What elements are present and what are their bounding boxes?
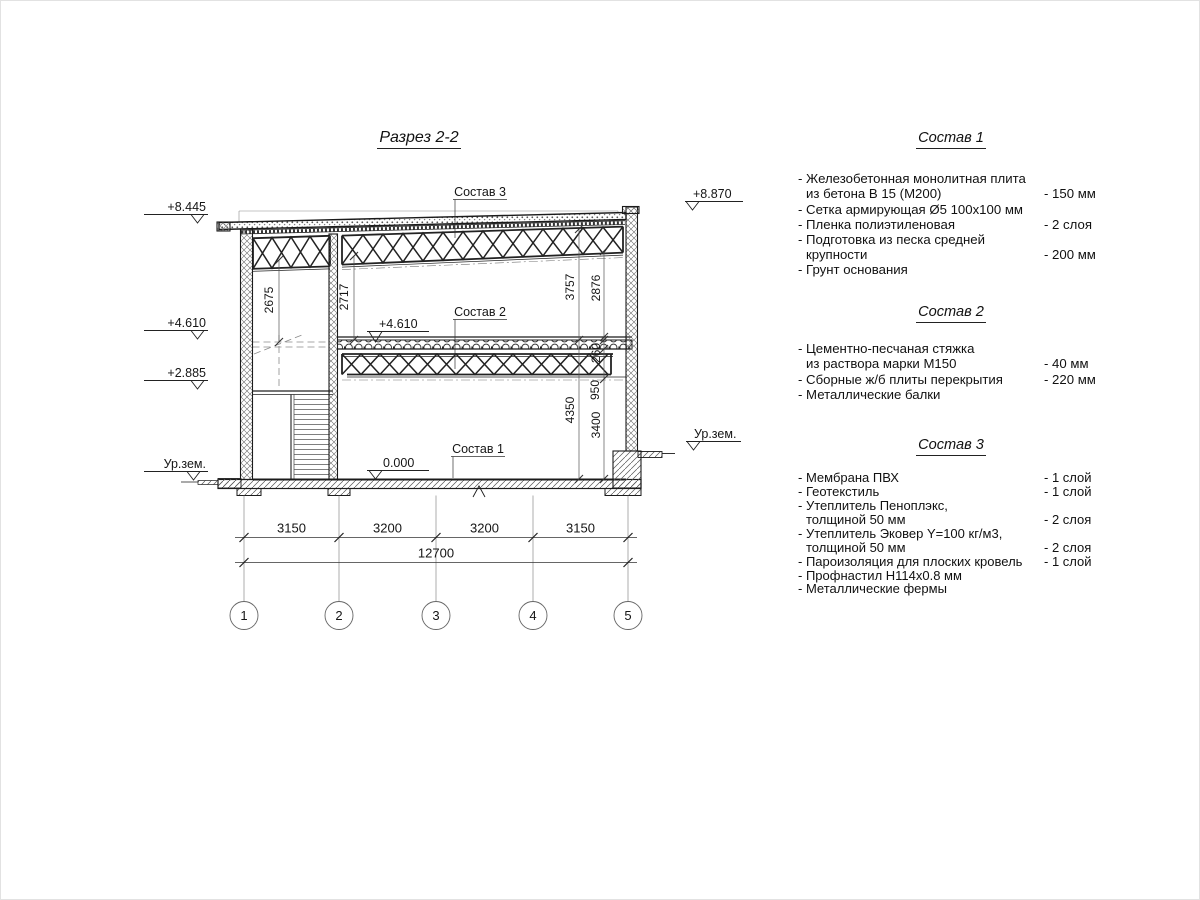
dim-3757: 3757 [563, 273, 577, 300]
dim-950: 950 [588, 380, 602, 400]
spec-2-rows: - Цементно-песчаная стяжка из раствора м… [798, 341, 1162, 402]
dim-2717: 2717 [337, 283, 351, 310]
parapet-cap [623, 207, 640, 214]
spec-row: - Подготовка из песка средней [798, 232, 1162, 247]
spec-row: - Утеплитель Эковер Y=100 кг/м3, [798, 527, 1162, 541]
bottom-dimensions: 3150 3200 3200 3150 12700 1 2 3 4 5 [230, 496, 642, 630]
spec-1-rows: - Железобетонная монолитная плита из бет… [798, 171, 1162, 277]
callout-sostav-2: Состав 2 [454, 305, 506, 319]
dim-260: 260 [589, 343, 603, 363]
right-wall [626, 207, 638, 451]
spec-row: толщиной 50 мм- 2 слоя [798, 541, 1162, 555]
spec-row: - Профнастил Н114х0.8 мм [798, 569, 1162, 583]
mark-8870: +8.870 [693, 187, 732, 201]
elevation-marks: +8.445 +4.610 +2.885 Ур.зем. +8.870 Ур.з… [144, 187, 743, 480]
floor-truss [342, 354, 626, 380]
right-foundation [613, 451, 641, 488]
dim-2675: 2675 [262, 286, 276, 313]
mark-ground-left: Ур.зем. [164, 457, 206, 471]
ground [181, 451, 675, 497]
spec-row: - Мембрана ПВХ- 1 слой [798, 471, 1162, 485]
mark-2885: +2.885 [167, 366, 206, 380]
spec-1-header: Состав 1 [798, 131, 1104, 146]
mark-0000: 0.000 [383, 456, 414, 470]
spec-row: - Сетка армирующая Ø5 100х100 мм [798, 202, 1162, 217]
spec-row: - Пленка полиэтиленовая- 2 слоя [798, 217, 1162, 232]
grid-bubble-5: 5 [624, 608, 631, 623]
spec-row: - Утеплитель Пеноплэкс, [798, 499, 1162, 513]
spec-row: - Металлические балки [798, 387, 1162, 402]
interior-wall [329, 234, 338, 480]
dim-4350: 4350 [563, 396, 577, 423]
left-wall [241, 229, 253, 480]
right-grade-ledge [638, 452, 662, 458]
mark-4610-left: +4.610 [167, 316, 206, 330]
grid-bubble-2: 2 [335, 608, 342, 623]
grid-bubble-3: 3 [432, 608, 439, 623]
roof-trusses [253, 227, 623, 272]
spec-row: - Сборные ж/б плиты перекрытия- 220 мм [798, 372, 1162, 387]
floor-slab [338, 337, 633, 349]
roof-left-cap [217, 222, 230, 231]
dim-3150-b: 3150 [566, 521, 595, 536]
spec-row: из бетона В 15 (М200)- 150 мм [798, 186, 1162, 201]
spec-row: толщиной 50 мм- 2 слоя [798, 513, 1162, 527]
staircase [253, 391, 334, 479]
mark-8445: +8.445 [167, 200, 206, 214]
spec-row: - Железобетонная монолитная плита [798, 171, 1162, 186]
callout-sostav-3: Состав 3 [454, 185, 506, 199]
spec-3-header: Состав 3 [798, 438, 1104, 453]
dim-3400: 3400 [589, 411, 603, 438]
drawing-title-text: Разрез 2-2 [377, 129, 460, 149]
drawing-title: Разрез 2-2 [353, 129, 485, 147]
spec-row: - Цементно-песчаная стяжка [798, 341, 1162, 356]
spec-sostav-1: Состав 1 - Железобетонная монолитная пли… [798, 131, 1162, 278]
mark-ground-right: Ур.зем. [694, 427, 736, 441]
callout-sostav-1: Состав 1 [452, 442, 504, 456]
mark-4610-inner: +4.610 [379, 317, 418, 331]
spec-row: - Металлические фермы [798, 582, 1162, 596]
spec-3-rows: - Мембрана ПВХ- 1 слой - Геотекстиль- 1 … [798, 471, 1162, 596]
spec-row: крупности- 200 мм [798, 247, 1162, 262]
left-grade-ledge [218, 479, 241, 489]
dim-3200-a: 3200 [373, 521, 402, 536]
spec-2-header: Состав 2 [798, 305, 1104, 320]
grid-bubble-4: 4 [529, 608, 536, 623]
dim-2876: 2876 [589, 274, 603, 301]
spec-sostav-2: Состав 2 - Цементно-песчаная стяжка из р… [798, 305, 1162, 402]
grid-bubble-1: 1 [240, 608, 247, 623]
drawing-sheet: 2675 2717 3757 2876 260 950 4350 3400 +8… [0, 0, 1200, 900]
dim-3150-a: 3150 [277, 521, 306, 536]
spec-row: - Геотекстиль- 1 слой [798, 485, 1162, 499]
spec-row: - Грунт основания [798, 262, 1162, 277]
dashed-opening [253, 335, 330, 390]
spec-sostav-3: Состав 3 - Мембрана ПВХ- 1 слой - Геотек… [798, 438, 1162, 596]
dim-total-12700: 12700 [418, 546, 454, 561]
spec-row: - Пароизоляция для плоских кровель- 1 сл… [798, 555, 1162, 569]
spec-row: из раствора марки М150- 40 мм [798, 356, 1162, 371]
dim-3200-b: 3200 [470, 521, 499, 536]
